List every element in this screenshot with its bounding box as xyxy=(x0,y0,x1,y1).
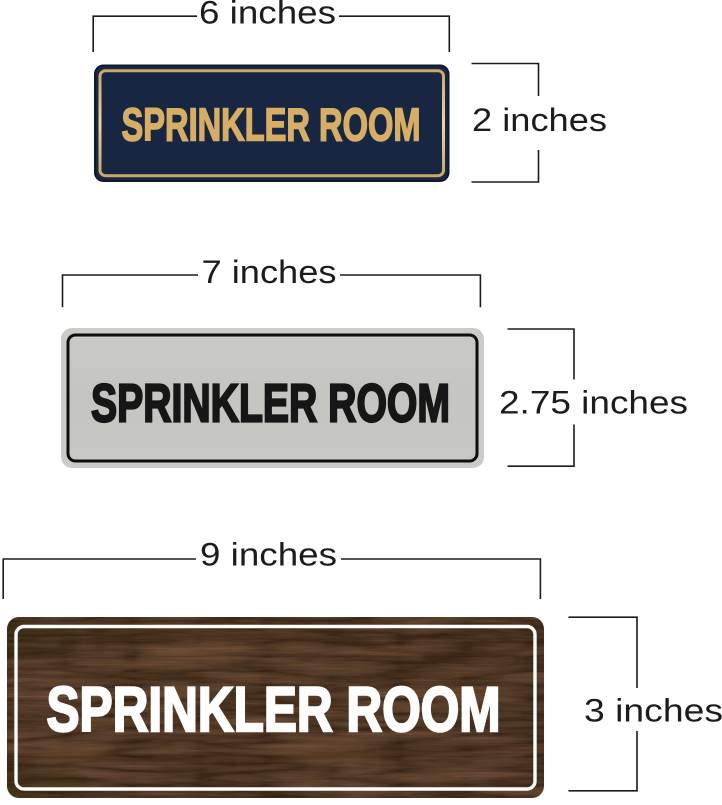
svg-text:SPRINKLER ROOM: SPRINKLER ROOM xyxy=(91,374,450,434)
svg-text:2 inches: 2 inches xyxy=(472,102,607,138)
svg-text:6 inches: 6 inches xyxy=(199,0,336,31)
svg-text:3 inches: 3 inches xyxy=(584,692,722,728)
svg-text:9 inches: 9 inches xyxy=(200,536,337,572)
svg-text:7 inches: 7 inches xyxy=(202,254,337,290)
svg-text:2.75 inches: 2.75 inches xyxy=(499,384,688,420)
svg-text:SPRINKLER ROOM: SPRINKLER ROOM xyxy=(122,99,421,151)
svg-text:SPRINKLER ROOM: SPRINKLER ROOM xyxy=(47,675,501,745)
